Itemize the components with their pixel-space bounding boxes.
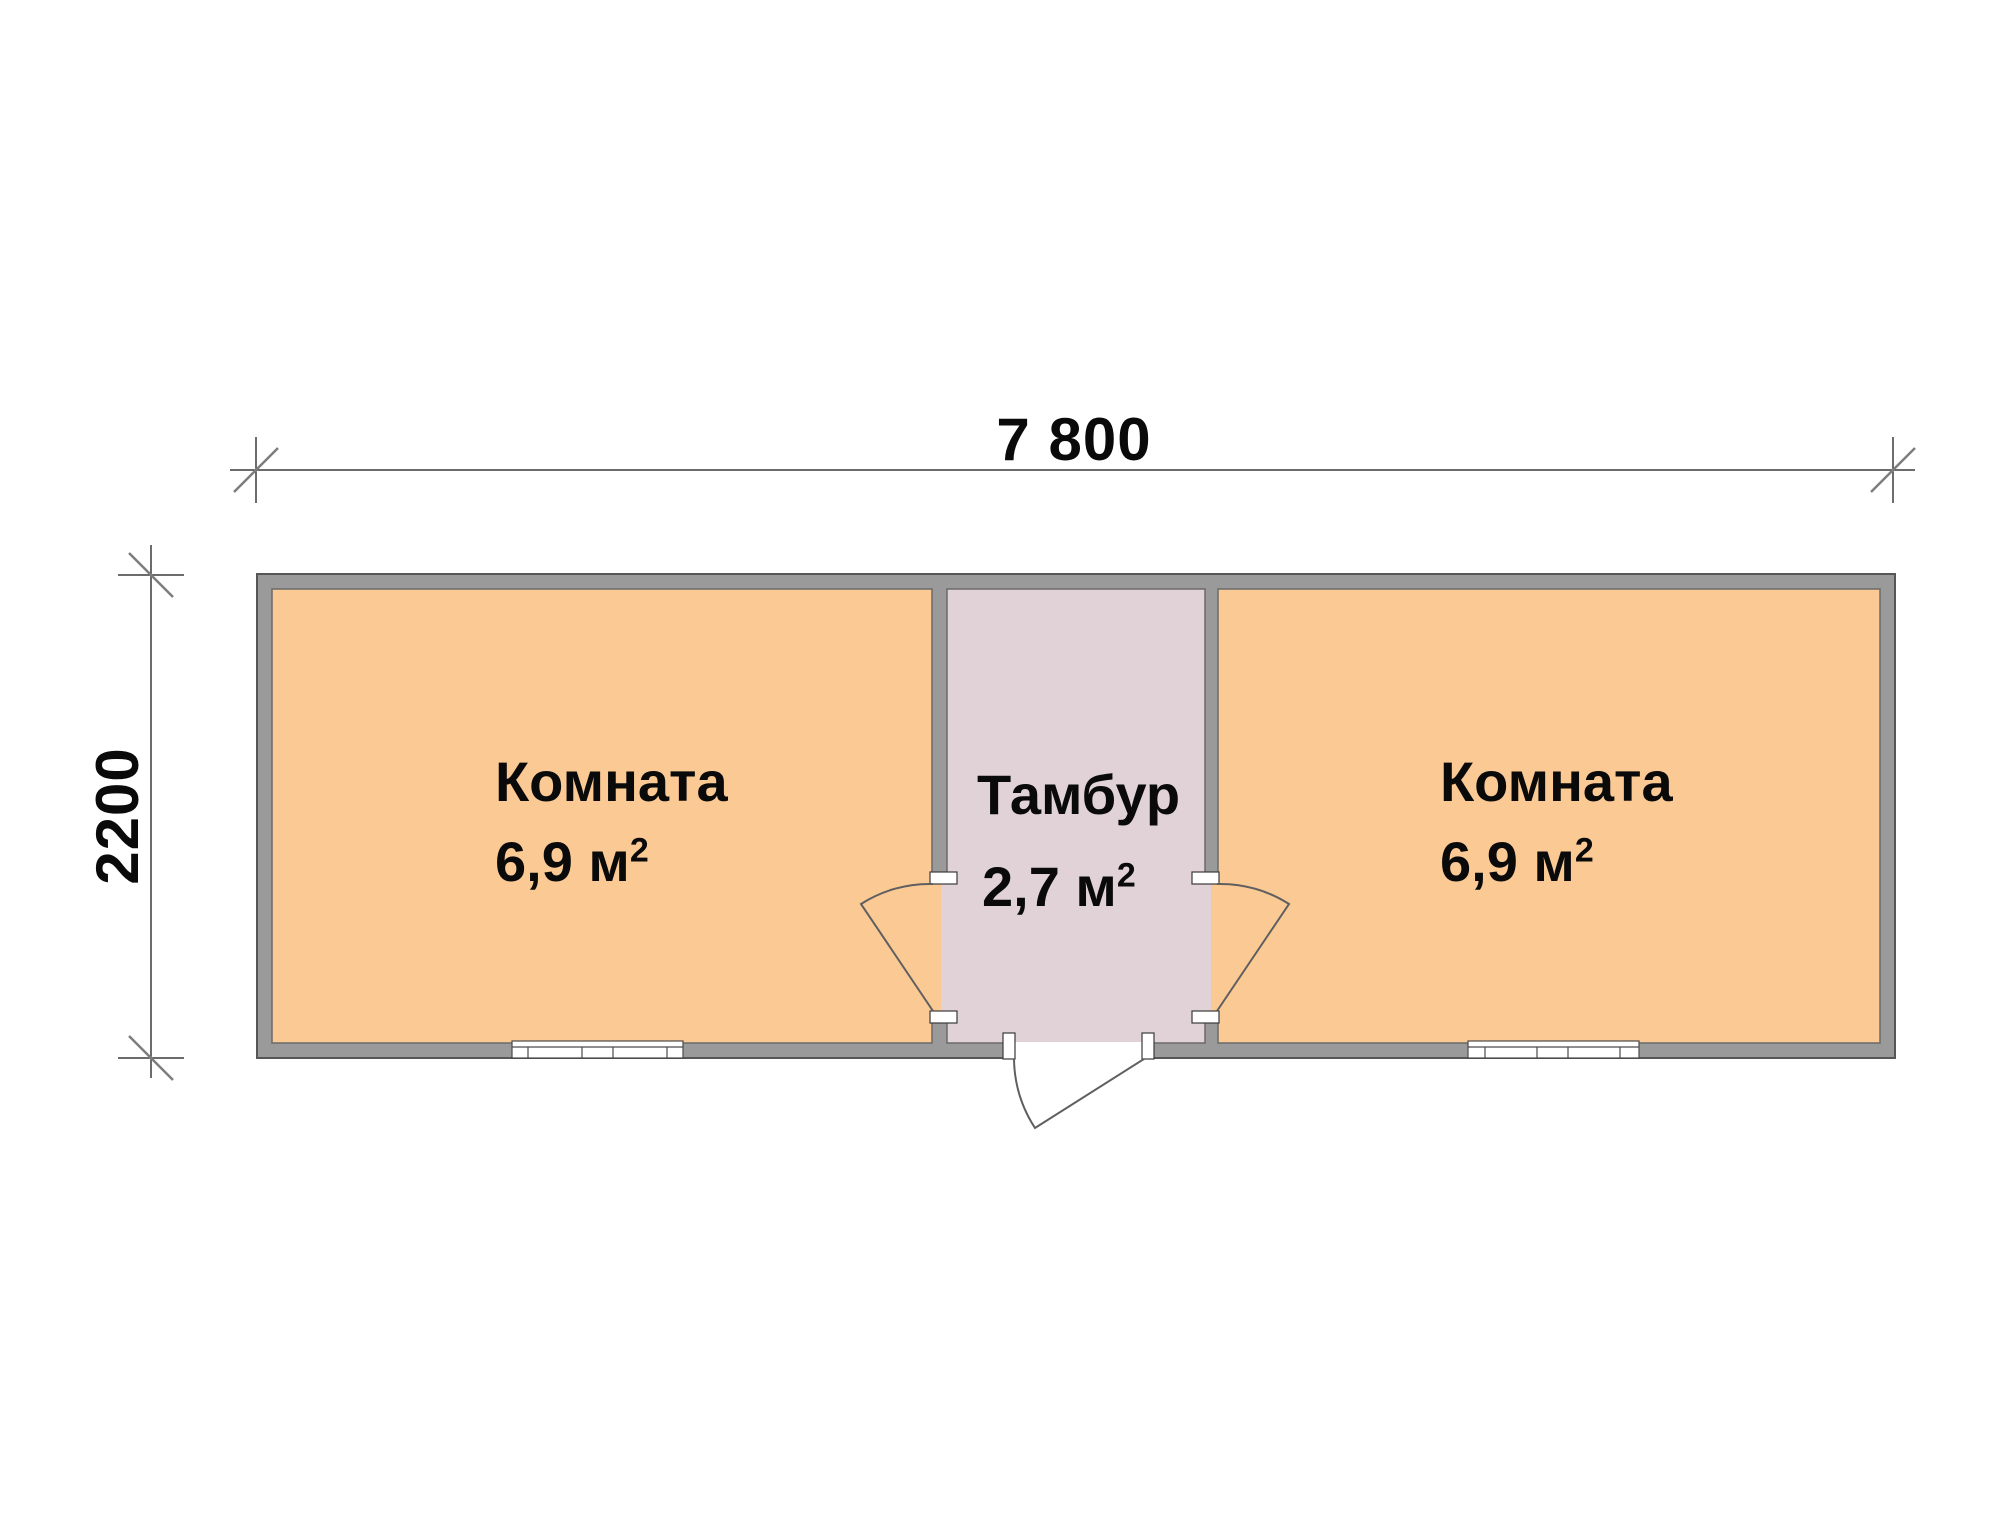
area-value: 2,7 м: [982, 855, 1117, 918]
area-value: 6,9 м: [495, 830, 630, 893]
area-value: 6,9 м: [1440, 830, 1575, 893]
room-right-area: 6,9 м2: [1440, 834, 1594, 890]
door-jamb: [1142, 1033, 1154, 1059]
door-opening-fill: [941, 884, 948, 1011]
vestibule-area: 2,7 м2: [982, 859, 1136, 915]
room-left-floor: [272, 589, 932, 1043]
vestibule-name: Тамбур: [977, 767, 1180, 823]
room-left-name: Комната: [495, 754, 728, 810]
door-jamb: [1003, 1033, 1015, 1059]
window-left: [512, 1041, 683, 1058]
partition-left-door-opening: [931, 884, 948, 1011]
door-jamb: [930, 872, 957, 884]
door-opening-fill: [1211, 884, 1219, 1011]
room-left-area: 6,9 м2: [495, 834, 649, 890]
floor-plan-canvas: 7 800 2200 Комната 6,9 м2 Тамбур 2,7 м2 …: [0, 0, 2000, 1538]
area-superscript: 2: [630, 831, 649, 869]
door-jamb: [1192, 1011, 1219, 1023]
window-right: [1468, 1041, 1639, 1058]
door-jamb: [1192, 872, 1219, 884]
dimension-height-label: 2200: [88, 616, 150, 1016]
area-superscript: 2: [1575, 831, 1594, 869]
entrance-door-opening: [1015, 1042, 1142, 1060]
room-right-name: Комната: [1440, 754, 1673, 810]
entrance-door-swing: [1014, 1059, 1144, 1128]
door-opening-fill: [1204, 884, 1211, 1011]
room-right-floor: [1218, 589, 1880, 1043]
window-frame: [1468, 1041, 1639, 1058]
door-opening-fill: [931, 884, 941, 1011]
door-jamb: [930, 1011, 957, 1023]
area-superscript: 2: [1117, 856, 1136, 894]
partition-right-door-opening: [1204, 884, 1219, 1011]
window-frame: [512, 1041, 683, 1058]
dimension-width-label: 7 800: [874, 410, 1274, 470]
